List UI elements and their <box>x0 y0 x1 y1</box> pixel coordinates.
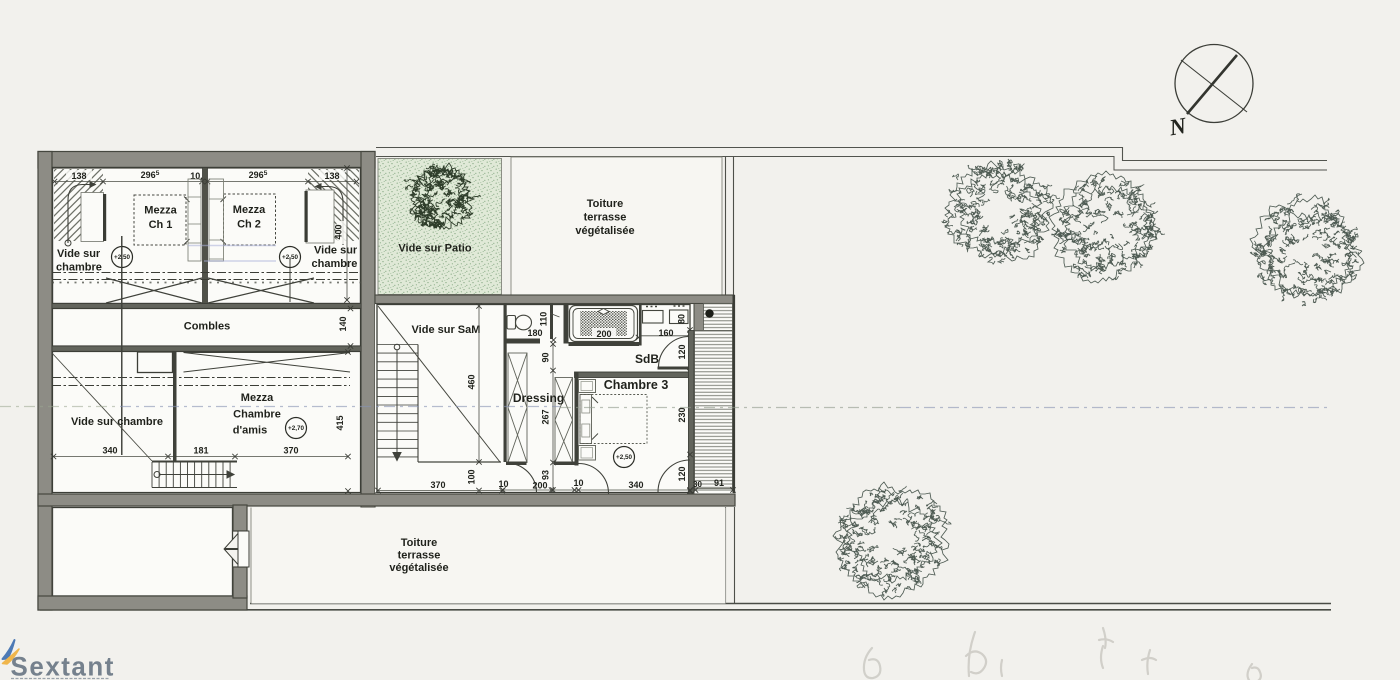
svg-text:160: 160 <box>658 328 673 338</box>
svg-text:340: 340 <box>628 480 643 490</box>
svg-text:terrasse: terrasse <box>584 212 627 224</box>
svg-text:Dressing: Dressing <box>513 391 564 405</box>
svg-text:+2,50: +2,50 <box>114 254 130 261</box>
svg-text:Vide sur chambre: Vide sur chambre <box>71 416 163 428</box>
svg-text:+2,50: +2,50 <box>616 454 632 461</box>
svg-text:93: 93 <box>541 470 551 480</box>
svg-text:180: 180 <box>527 328 542 338</box>
svg-text:460: 460 <box>467 374 477 389</box>
svg-text:Vide sur: Vide sur <box>57 248 101 260</box>
svg-text:terrasse: terrasse <box>398 550 441 562</box>
svg-text:végétalisée: végétalisée <box>389 562 448 574</box>
svg-text:Mezza: Mezza <box>233 204 266 216</box>
svg-text:200: 200 <box>532 481 547 491</box>
svg-text:110: 110 <box>539 312 549 327</box>
svg-text:230: 230 <box>677 407 687 422</box>
svg-text:Sextant: Sextant <box>11 651 115 680</box>
svg-text:415: 415 <box>335 415 345 430</box>
svg-text:Combles: Combles <box>184 321 230 333</box>
svg-text:267: 267 <box>541 409 551 424</box>
svg-text:Chambre 3: Chambre 3 <box>604 378 669 392</box>
svg-text:SdB: SdB <box>635 352 659 366</box>
svg-text:90: 90 <box>541 352 551 362</box>
svg-text:chambre: chambre <box>56 262 102 274</box>
svg-text:Ch 2: Ch 2 <box>237 219 261 231</box>
svg-text:+2,50: +2,50 <box>282 254 298 261</box>
svg-text:Vide sur Patio: Vide sur Patio <box>398 243 471 255</box>
svg-text:Mezza: Mezza <box>144 205 177 217</box>
svg-text:370: 370 <box>283 446 298 456</box>
svg-text:100: 100 <box>467 469 477 484</box>
svg-text:200: 200 <box>596 329 611 339</box>
svg-text:Vide sur SaM: Vide sur SaM <box>412 324 481 336</box>
svg-text:Toiture: Toiture <box>401 537 437 549</box>
svg-text:Chambre: Chambre <box>233 409 281 421</box>
svg-text:80: 80 <box>677 314 687 324</box>
svg-text:91: 91 <box>714 478 724 488</box>
svg-text:d'amis: d'amis <box>233 425 267 437</box>
svg-text:Mezza: Mezza <box>241 392 274 404</box>
svg-text:10: 10 <box>498 479 508 489</box>
svg-text:400: 400 <box>334 224 344 239</box>
svg-text:Vide sur: Vide sur <box>314 245 358 257</box>
svg-text:120: 120 <box>677 344 687 359</box>
svg-text:+2,70: +2,70 <box>288 425 304 432</box>
svg-text:30: 30 <box>693 480 702 489</box>
svg-text:138: 138 <box>324 171 339 181</box>
svg-text:140: 140 <box>338 316 348 331</box>
svg-text:Ch 1: Ch 1 <box>149 219 173 231</box>
svg-text:10: 10 <box>573 478 583 488</box>
svg-text:Toiture: Toiture <box>587 198 623 210</box>
svg-text:340: 340 <box>102 446 117 456</box>
svg-text:181: 181 <box>193 446 208 456</box>
svg-text:chambre: chambre <box>312 258 358 270</box>
svg-text:370: 370 <box>430 480 445 490</box>
svg-text:138: 138 <box>71 171 86 181</box>
svg-text:120: 120 <box>677 466 687 481</box>
svg-text:végétalisée: végétalisée <box>575 225 634 237</box>
